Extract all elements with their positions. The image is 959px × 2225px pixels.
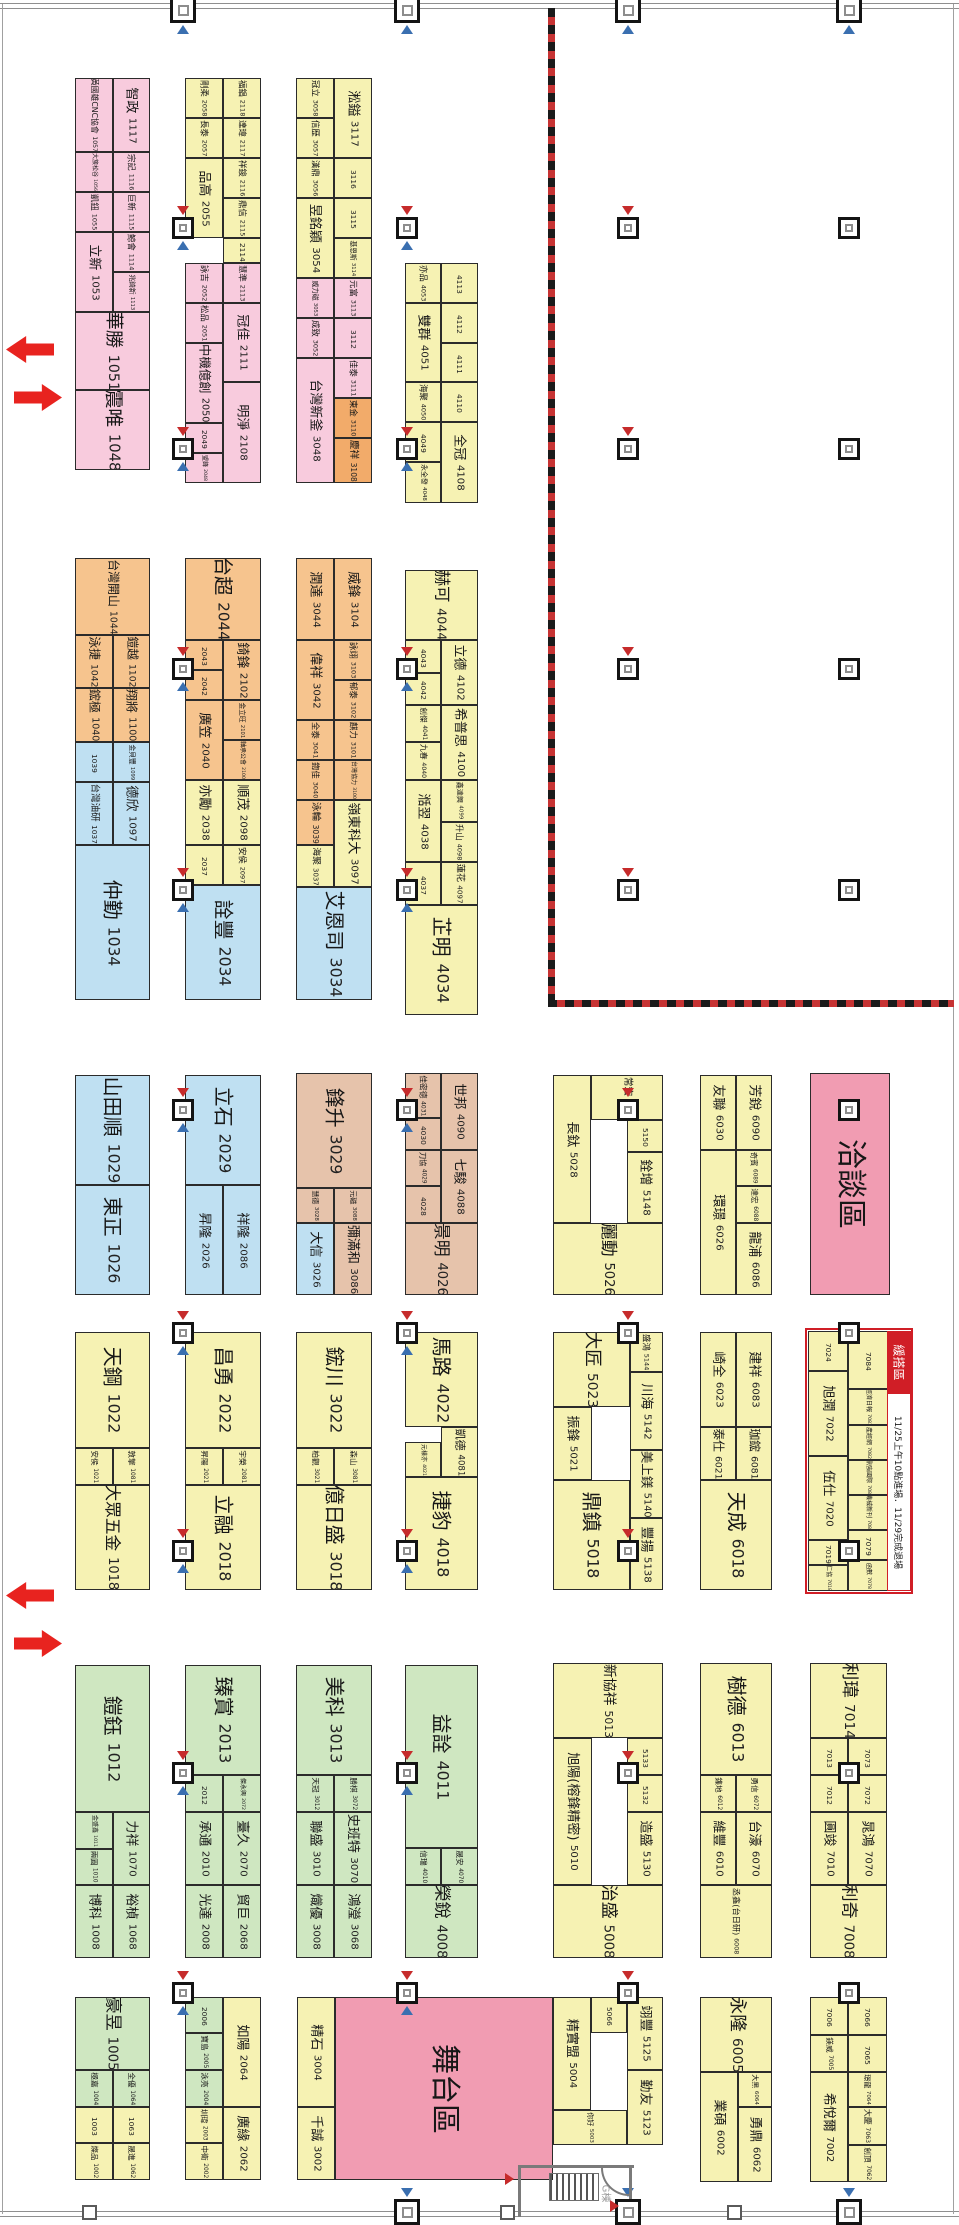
booth-6030: 友聯6030 xyxy=(700,1075,736,1150)
structural-column xyxy=(172,217,194,239)
booth-6086: 龍浦6086 xyxy=(736,1223,772,1295)
booth-2097: 安侯2097 xyxy=(223,845,261,885)
booth-1099: 金貝豐1099 xyxy=(113,742,150,782)
booth-1097: 德欣1097 xyxy=(113,782,150,845)
booth-1005: 豪昱1005 xyxy=(75,1997,150,2070)
booth-3104: 威鋒3104 xyxy=(334,558,372,640)
structural-column xyxy=(838,438,860,460)
entrance-marker-blue xyxy=(177,1786,189,1795)
booth-1040: 鋐極1040 xyxy=(75,688,113,742)
stair-wall xyxy=(518,2165,521,2217)
booth-3081: 森山3081 xyxy=(334,1448,372,1485)
structural-column xyxy=(172,1540,194,1562)
structural-column xyxy=(396,879,418,901)
booth-6023: 崎全6023 xyxy=(700,1332,736,1427)
booth-7062: 創頂7062 xyxy=(848,2145,887,2182)
structural-column xyxy=(617,1322,639,1344)
booth-4008: 榮銳4008 xyxy=(405,1885,478,1958)
entrance-marker-blue xyxy=(177,682,189,691)
booth-2034: 詮豐2034 xyxy=(185,885,261,1000)
booth-4081: 凱德4081 xyxy=(441,1427,478,1477)
booth-5008: 治盛5008 xyxy=(553,1885,663,1958)
booth-5028: 長鈦5028 xyxy=(553,1075,591,1223)
entrance-marker-red xyxy=(401,1529,413,1538)
booth-2008: 光達2008 xyxy=(185,1885,223,1958)
booth-4029: 刀協4029 xyxy=(405,1150,441,1186)
booth-3114: 基恩斯3114 xyxy=(334,238,372,278)
booth-6026: 環璟6026 xyxy=(700,1150,736,1295)
entrance-marker-blue xyxy=(401,682,413,691)
structural-column xyxy=(172,879,194,901)
booth-2086: 祥隆2086 xyxy=(223,1185,261,1295)
booth-6008: 丞鑫(台日研)6008 xyxy=(700,1885,772,1958)
entrance-marker-blue xyxy=(401,1123,413,1132)
booth-5003: 你好5003 xyxy=(553,2110,627,2145)
flow-arrow-right xyxy=(14,1630,62,1657)
structural-column xyxy=(838,1322,860,1344)
entrance-marker-blue xyxy=(401,241,413,250)
booth-1044: 台灣開山1044 xyxy=(75,558,150,635)
booth-7008: 利奇7008 xyxy=(810,1885,887,1958)
structural-column xyxy=(396,1982,418,2004)
structural-column xyxy=(396,438,418,460)
flow-arrow-right xyxy=(14,384,62,411)
booth-3108: 慶祥3108 xyxy=(334,438,372,483)
entrance-marker-red xyxy=(401,1311,413,1320)
booth-5123: 勤友5123 xyxy=(627,2070,663,2145)
booth-3044: 潤達3044 xyxy=(296,558,334,640)
structural-column xyxy=(838,217,860,239)
booth-1008: 博科1008 xyxy=(75,1885,113,1958)
booth-6021: 泰仕6021 xyxy=(700,1427,736,1480)
booth-4034: 芷明4034 xyxy=(405,905,478,1015)
booth-6081: 珈鋐6081 xyxy=(736,1427,772,1480)
entrance-marker-red xyxy=(622,1971,634,1980)
entrance-marker-red xyxy=(177,1529,189,1538)
booth-4041: 創傑4041 xyxy=(405,705,441,742)
booth-1048: 震唯1048 xyxy=(75,390,150,470)
booth-1116: 宗記1116 xyxy=(113,152,150,192)
entrance-marker-blue xyxy=(401,462,413,471)
wall-column-small xyxy=(500,2205,515,2220)
hall-divider-dashed-vertical xyxy=(548,8,555,1003)
entrance-marker-blue xyxy=(177,241,189,250)
booth-3115: 3115 xyxy=(334,198,372,238)
booth-1115: 巨新1115 xyxy=(113,192,150,232)
entrance-marker-red xyxy=(401,1971,413,1980)
booth-5026: 麗動5026 xyxy=(553,1223,663,1295)
booth-1022: 天鋼1022 xyxy=(75,1332,150,1448)
booth-5004: 精實盟5004 xyxy=(553,1997,591,2110)
booth-7063: 大慶7063 xyxy=(848,2107,887,2145)
booth-2029: 立石2029 xyxy=(185,1075,261,1185)
structural-column xyxy=(396,1762,418,1784)
booth-3040: 鍧佳3040 xyxy=(296,760,334,800)
booth-3088: 元磁3088 xyxy=(334,1188,372,1223)
structural-column xyxy=(838,879,860,901)
entrance-marker-blue xyxy=(177,903,189,912)
booth-6090: 芳銳6090 xyxy=(736,1075,772,1150)
structural-column xyxy=(838,1982,860,2004)
booth-2062: 廣緣2062 xyxy=(223,2107,261,2180)
booth-2018: 立融2018 xyxy=(185,1485,261,1590)
booth-2005: 寶島2005 xyxy=(185,2033,223,2070)
booth-1021: 安侯1021 xyxy=(75,1448,113,1485)
booth-2022: 昌勇2022 xyxy=(185,1332,261,1448)
booth-5148: 銓增5148 xyxy=(627,1152,663,1223)
booth-5150: 5150 xyxy=(627,1120,663,1152)
entrance-marker-red xyxy=(177,206,189,215)
booth-7010: 圓竣7010 xyxy=(810,1812,848,1885)
booth-7065: 7065 xyxy=(848,2035,887,2072)
booth-5140: 美上鎂5140 xyxy=(630,1450,663,1518)
booth-3056: 漢鼎3056 xyxy=(296,158,334,198)
exhibition-floorplan: 黃國雄CNC協會1057智政1117大簇松谷1056宗記1116凱鈕1055巨新… xyxy=(0,0,959,2225)
booth-2115: 鼎信2115 xyxy=(223,198,261,238)
booth-5018: 鼎鎮5018 xyxy=(553,1480,630,1590)
entrance-marker-blue xyxy=(177,1123,189,1132)
booth-4026: 景明4026 xyxy=(405,1223,478,1295)
building-label: G棟 xyxy=(599,2185,614,2203)
booth-4044: 赫可4044 xyxy=(405,570,478,640)
booth-3100: 台灣協力3100 xyxy=(334,760,372,800)
booth-1034: 仲勤1034 xyxy=(75,845,150,1000)
booth-2070: 臺久2070 xyxy=(223,1812,261,1885)
entrance-marker-blue xyxy=(401,903,413,912)
staircase xyxy=(549,2173,599,2201)
structural-column xyxy=(172,1762,194,1784)
booth-4098: 升山4098 xyxy=(441,822,478,862)
booth-1037: 台灣油研1037 xyxy=(75,782,113,845)
booth-1026: 東正1026 xyxy=(75,1185,150,1295)
booth-4100: 希普思4100 xyxy=(441,705,478,780)
booth-4099: 鑫達興4099 xyxy=(441,780,478,822)
booth-7014: 利瑋7014 xyxy=(810,1663,887,1738)
booth-1053: 立新1053 xyxy=(75,232,113,312)
entrance-marker-red xyxy=(622,1529,634,1538)
booth-1012: 鎧鈺1012 xyxy=(75,1665,150,1812)
booth-5010: 旭陽(榕鋒精密)5010 xyxy=(553,1738,592,1885)
booth-2050: 中機億創2050 xyxy=(185,343,223,423)
booth-2113: 慧準2113 xyxy=(223,263,261,303)
structural-column xyxy=(617,879,639,901)
booth-2098: 順茂2098 xyxy=(223,780,261,845)
booth-4097: 蓮花4097 xyxy=(441,862,478,905)
booth-6070: 台濠6070 xyxy=(736,1812,772,1885)
structural-column xyxy=(617,1982,639,2004)
hall-divider-dashed-horizontal xyxy=(548,1000,954,1007)
booth-3010: 聯盛3010 xyxy=(296,1812,334,1885)
wall-column xyxy=(836,0,862,23)
booth-3034: 艾恩司3034 xyxy=(296,887,372,1000)
booth-1011: 金盛鑫1011 xyxy=(75,1812,113,1849)
entrance-marker-blue xyxy=(843,25,855,34)
left-wall xyxy=(2,4,3,2214)
booth-5130: 造盛5130 xyxy=(627,1812,663,1885)
entrance-marker-red xyxy=(401,1751,413,1760)
structural-column xyxy=(838,1762,860,1784)
wall-column-small xyxy=(727,2205,742,2220)
booth-4010: 信瑞4010 xyxy=(405,1848,441,1885)
booth-3111: 佳泰3111 xyxy=(334,358,372,398)
booth-4113: 4113 xyxy=(441,263,478,303)
booth-3070: 史班特3070 xyxy=(334,1812,372,1885)
entrance-marker-red xyxy=(622,206,634,215)
booth-4111: 4111 xyxy=(441,343,478,382)
booth-2051: 松品2051 xyxy=(185,303,223,343)
booth-2038: 亦勵2038 xyxy=(185,780,223,845)
stair-wall xyxy=(629,2165,632,2199)
entrance-marker-blue xyxy=(401,1564,413,1573)
booth-3026: 大信3026 xyxy=(296,1223,334,1295)
entrance-marker-red xyxy=(177,1088,189,1097)
booth-7002: 希悅爾7002 xyxy=(810,2072,848,2182)
booth-3039: 泳輪3039 xyxy=(296,800,334,845)
booth-3072: 勝棋3072 xyxy=(334,1775,372,1812)
booth-4040: 九春4040 xyxy=(405,742,441,780)
booth-1081: 敦擎1081 xyxy=(113,1448,150,1485)
booth-4070: 晟安4070 xyxy=(441,1848,478,1885)
wall-column xyxy=(836,2199,862,2225)
booth-3102: 郁泰3102 xyxy=(334,680,372,720)
booth-3057: 信歷3057 xyxy=(296,118,334,158)
booth-1114: 鯨會1114 xyxy=(113,232,150,272)
structural-column xyxy=(838,1540,860,1562)
booth-3048: 台灣新釜3048 xyxy=(296,358,334,483)
booth-3004: 精石3004 xyxy=(297,1997,335,2107)
booth-4022: 馬路4022 xyxy=(405,1332,478,1427)
booth-3052: 成致3052 xyxy=(296,318,334,358)
booth-7064: 璟龍7064 xyxy=(848,2072,887,2107)
entrance-marker-red xyxy=(177,647,189,656)
structural-column xyxy=(396,1099,418,1121)
booth-3097: 嶺東科大3097 xyxy=(334,800,372,887)
booth-舞台區: 舞台區 xyxy=(335,1997,553,2180)
booth-4011: 益詮4011 xyxy=(405,1665,478,1848)
booth-1029: 山田順1029 xyxy=(75,1075,150,1185)
booth-2044: 台超2044 xyxy=(185,558,261,640)
booth-3012: 天冠3012 xyxy=(296,1775,334,1812)
entrance-marker-red xyxy=(622,427,634,436)
top-wall xyxy=(0,3,959,9)
structural-column xyxy=(172,1099,194,1121)
entrance-marker-red xyxy=(401,427,413,436)
booth-2003: 圳瑋2003 xyxy=(185,2107,223,2143)
entrance-marker-red xyxy=(177,1751,189,1760)
entrance-marker-red xyxy=(177,427,189,436)
booth-1117: 智政1117 xyxy=(113,78,150,152)
booth-2058: 剛柔2058 xyxy=(185,78,223,118)
booth-1039: 1039 xyxy=(75,742,113,782)
entrance-marker-red xyxy=(401,647,413,656)
entrance-marker-blue xyxy=(177,1564,189,1573)
bottom-wall xyxy=(0,2211,959,2217)
booth-6018: 天成6018 xyxy=(700,1480,772,1590)
booth-1113: 兆錡新1113 xyxy=(113,272,150,312)
booth-6010: 維豐6010 xyxy=(700,1812,736,1885)
booth-3086: 彌滿和3086 xyxy=(334,1223,372,1295)
structural-column xyxy=(617,1099,639,1121)
booth-4018: 捷豹4018 xyxy=(405,1477,478,1590)
booth-3103: 詠翊3103 xyxy=(334,640,372,680)
booth-1055: 凱鈕1055 xyxy=(75,192,113,232)
booth-3116: 3116 xyxy=(334,158,372,198)
structural-column xyxy=(617,1540,639,1562)
booth-2072: 傑永興2072 xyxy=(223,1775,261,1812)
entrance-marker-blue xyxy=(622,25,634,34)
booth-3013: 美科3013 xyxy=(296,1665,372,1775)
stair-marker-red xyxy=(505,2173,514,2185)
booth-3112: 3112 xyxy=(334,318,372,358)
booth-3037: 海聚3037 xyxy=(296,845,334,887)
booth-3068: 鴻瀅3068 xyxy=(334,1885,372,1958)
booth-1057: 黃國雄CNC協會1057 xyxy=(75,78,113,152)
booth-7070: 晁鴻7070 xyxy=(848,1812,887,1885)
entrance-marker-blue xyxy=(401,1346,413,1355)
booth-3018: 億日盛3018 xyxy=(296,1485,372,1590)
entrance-marker-red xyxy=(401,868,413,877)
booth-6088: 達宏6088 xyxy=(736,1186,772,1223)
wall-column-small xyxy=(82,2205,97,2220)
booth-6012: 鏶地6012 xyxy=(700,1775,736,1812)
booth-2040: 廣笠2040 xyxy=(185,700,223,780)
wall-column xyxy=(394,2199,420,2225)
entrance-marker-red xyxy=(622,1088,634,1097)
flow-arrow-left xyxy=(6,336,54,363)
entrance-marker-red xyxy=(177,1971,189,1980)
booth-1010: 兩圓1010 xyxy=(75,1849,113,1885)
booth-3002: 千誠3002 xyxy=(297,2107,335,2180)
booth-6005: 永隆6005 xyxy=(700,1997,772,2072)
booth-2068: 貿巨2068 xyxy=(223,1885,261,1958)
booth-2064: 如陽2064 xyxy=(223,1997,261,2107)
structural-column xyxy=(172,1982,194,2004)
structural-column xyxy=(396,658,418,680)
booth-2002: 中衛2002 xyxy=(185,2143,223,2180)
booth-1042: 泳捷1042 xyxy=(75,635,113,688)
booth-5125: 翊豐5125 xyxy=(627,1997,663,2070)
booth-1002: 燦品1002 xyxy=(75,2143,113,2180)
booth-3054: 昱銘穎3054 xyxy=(296,198,334,278)
entrance-marker-blue xyxy=(401,1786,413,1795)
booth-4053: 亦品4053 xyxy=(405,263,441,303)
entrance-marker-blue xyxy=(177,462,189,471)
booth-2111: 冠佳2111 xyxy=(223,303,261,382)
booth-1070: 力祥1070 xyxy=(113,1812,150,1885)
entrance-marker-blue xyxy=(401,2006,413,2015)
booth-3113: 元富3113 xyxy=(334,278,372,318)
right-wall xyxy=(953,4,954,2214)
entrance-marker-red xyxy=(622,868,634,877)
booth-2101: 金立旺2101 xyxy=(223,700,261,740)
booth-3029: 鋒升3029 xyxy=(296,1073,372,1188)
structural-column xyxy=(617,1762,639,1784)
structural-column xyxy=(396,217,418,239)
booth-6002: 業碩6002 xyxy=(700,2072,738,2182)
booth-4108: 全冠4108 xyxy=(441,422,478,503)
booth-2021: 昇陽2021 xyxy=(185,1448,223,1485)
booth-3041: 全泰3041 xyxy=(296,720,334,760)
booth-3058: 冠立3058 xyxy=(296,78,334,118)
booth-3101: 麒力3101 xyxy=(334,720,372,760)
booth-1063: 1063 xyxy=(113,2107,150,2143)
booth-6083: 建祥6083 xyxy=(736,1332,772,1427)
booth-5013: 新協祥5013 xyxy=(553,1663,663,1738)
booth-6062: 勇鼎6062 xyxy=(738,2107,772,2182)
reserved-zone-title: 緩搭區 xyxy=(887,1331,911,1393)
booth-1064: 全優1064 xyxy=(113,2070,150,2107)
booth-4050: 海聚4050 xyxy=(405,382,441,422)
booth-1100: 翔將1100 xyxy=(113,688,150,742)
entrance-marker-red xyxy=(177,1311,189,1320)
entrance-marker-red xyxy=(177,868,189,877)
booth-4028: 4028 xyxy=(405,1186,441,1223)
booth-1003: 1003 xyxy=(75,2107,113,2143)
booth-3042: 偉祥3042 xyxy=(296,640,334,720)
structural-column xyxy=(172,658,194,680)
booth-2116: 祥鋑2116 xyxy=(223,158,261,198)
structural-column xyxy=(617,658,639,680)
booth-2026: 昇隆2026 xyxy=(185,1185,223,1295)
booth-2081: 宇榮2081 xyxy=(223,1448,261,1485)
structural-column xyxy=(396,1322,418,1344)
entrance-marker-blue xyxy=(401,2188,413,2197)
booth-4102: 立德4102 xyxy=(441,640,478,705)
entrance-marker-blue xyxy=(177,25,189,34)
booth-2108: 明淨2108 xyxy=(223,382,261,483)
booth-3117: 淞鎰3117 xyxy=(334,78,372,158)
booth-4112: 4112 xyxy=(441,303,478,343)
booth-4038: 湉翌4038 xyxy=(405,780,441,862)
flow-arrow-left xyxy=(6,1582,54,1609)
booth-1068: 裕楨1068 xyxy=(113,1885,150,1958)
booth-1056: 大簇松谷1056 xyxy=(75,152,113,192)
booth-6013: 樹德6013 xyxy=(700,1663,772,1775)
booth-2057: 長泰2057 xyxy=(185,118,223,158)
booth-1004: 極嘉1004 xyxy=(75,2070,113,2107)
wall-column xyxy=(394,0,420,23)
entrance-marker-red xyxy=(622,647,634,656)
entrance-marker-red xyxy=(401,206,413,215)
booth-2004: 泳亮2004 xyxy=(185,2070,223,2107)
booth-7005: 鎂威7005 xyxy=(810,2035,848,2072)
booth-2118: 福錩2118 xyxy=(223,78,261,118)
booth-1051: 華勝1051 xyxy=(75,312,150,390)
booth-1062: 晟進1062 xyxy=(113,2143,150,2180)
booth-2013: 臻賞2013 xyxy=(185,1665,261,1775)
booth-1018: 大眾五金1018 xyxy=(75,1485,150,1590)
booth-3053: 威力磁3053 xyxy=(296,278,334,318)
structural-column xyxy=(172,1322,194,1344)
booth-1102: 鎧越1102 xyxy=(113,635,150,688)
structural-column xyxy=(838,658,860,680)
booth-2102: 錡鋒2102 xyxy=(223,640,261,700)
entrance-marker-blue xyxy=(177,1346,189,1355)
booth-2052: 詠吉2052 xyxy=(185,263,223,303)
entrance-marker-blue xyxy=(843,2188,855,2197)
booth-4088: 七駿4088 xyxy=(441,1150,478,1223)
booth-4021: 元樣亦4021 xyxy=(405,1442,441,1477)
structural-column xyxy=(838,1099,860,1121)
entrance-marker-blue xyxy=(401,25,413,34)
wall-column xyxy=(615,0,641,23)
structural-column xyxy=(172,438,194,460)
wall-column xyxy=(170,0,196,23)
structural-column xyxy=(617,217,639,239)
entrance-marker-red xyxy=(622,1311,634,1320)
booth-3028: 慧德3028 xyxy=(296,1188,334,1223)
structural-column xyxy=(396,1540,418,1562)
